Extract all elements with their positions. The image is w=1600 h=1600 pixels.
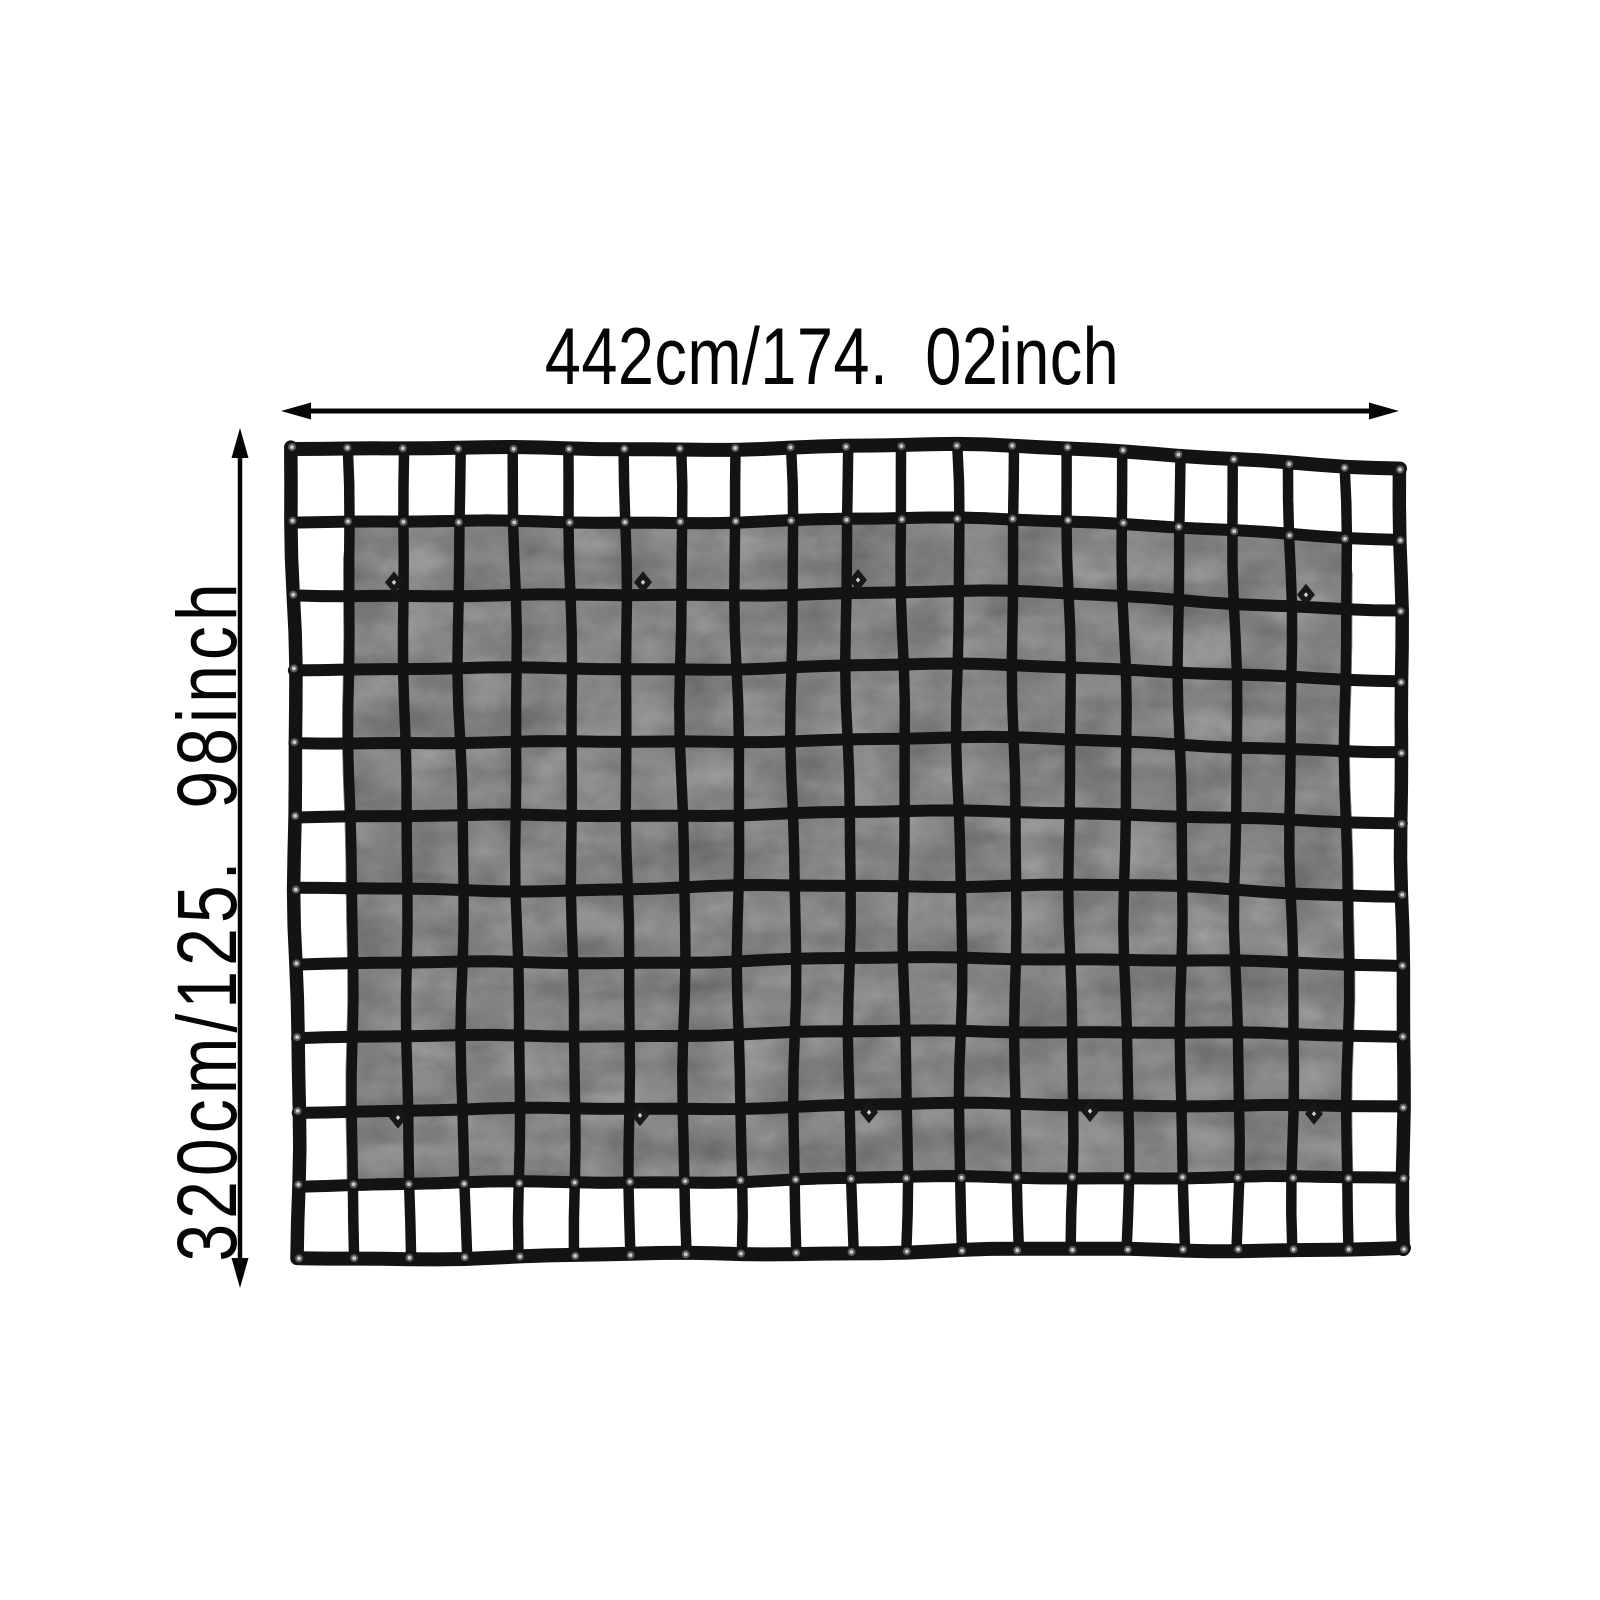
svg-text:442cm/174. 02inch: 442cm/174. 02inch xyxy=(545,311,1119,401)
svg-text:320cm/125. 98inch: 320cm/125. 98inch xyxy=(161,578,255,1261)
